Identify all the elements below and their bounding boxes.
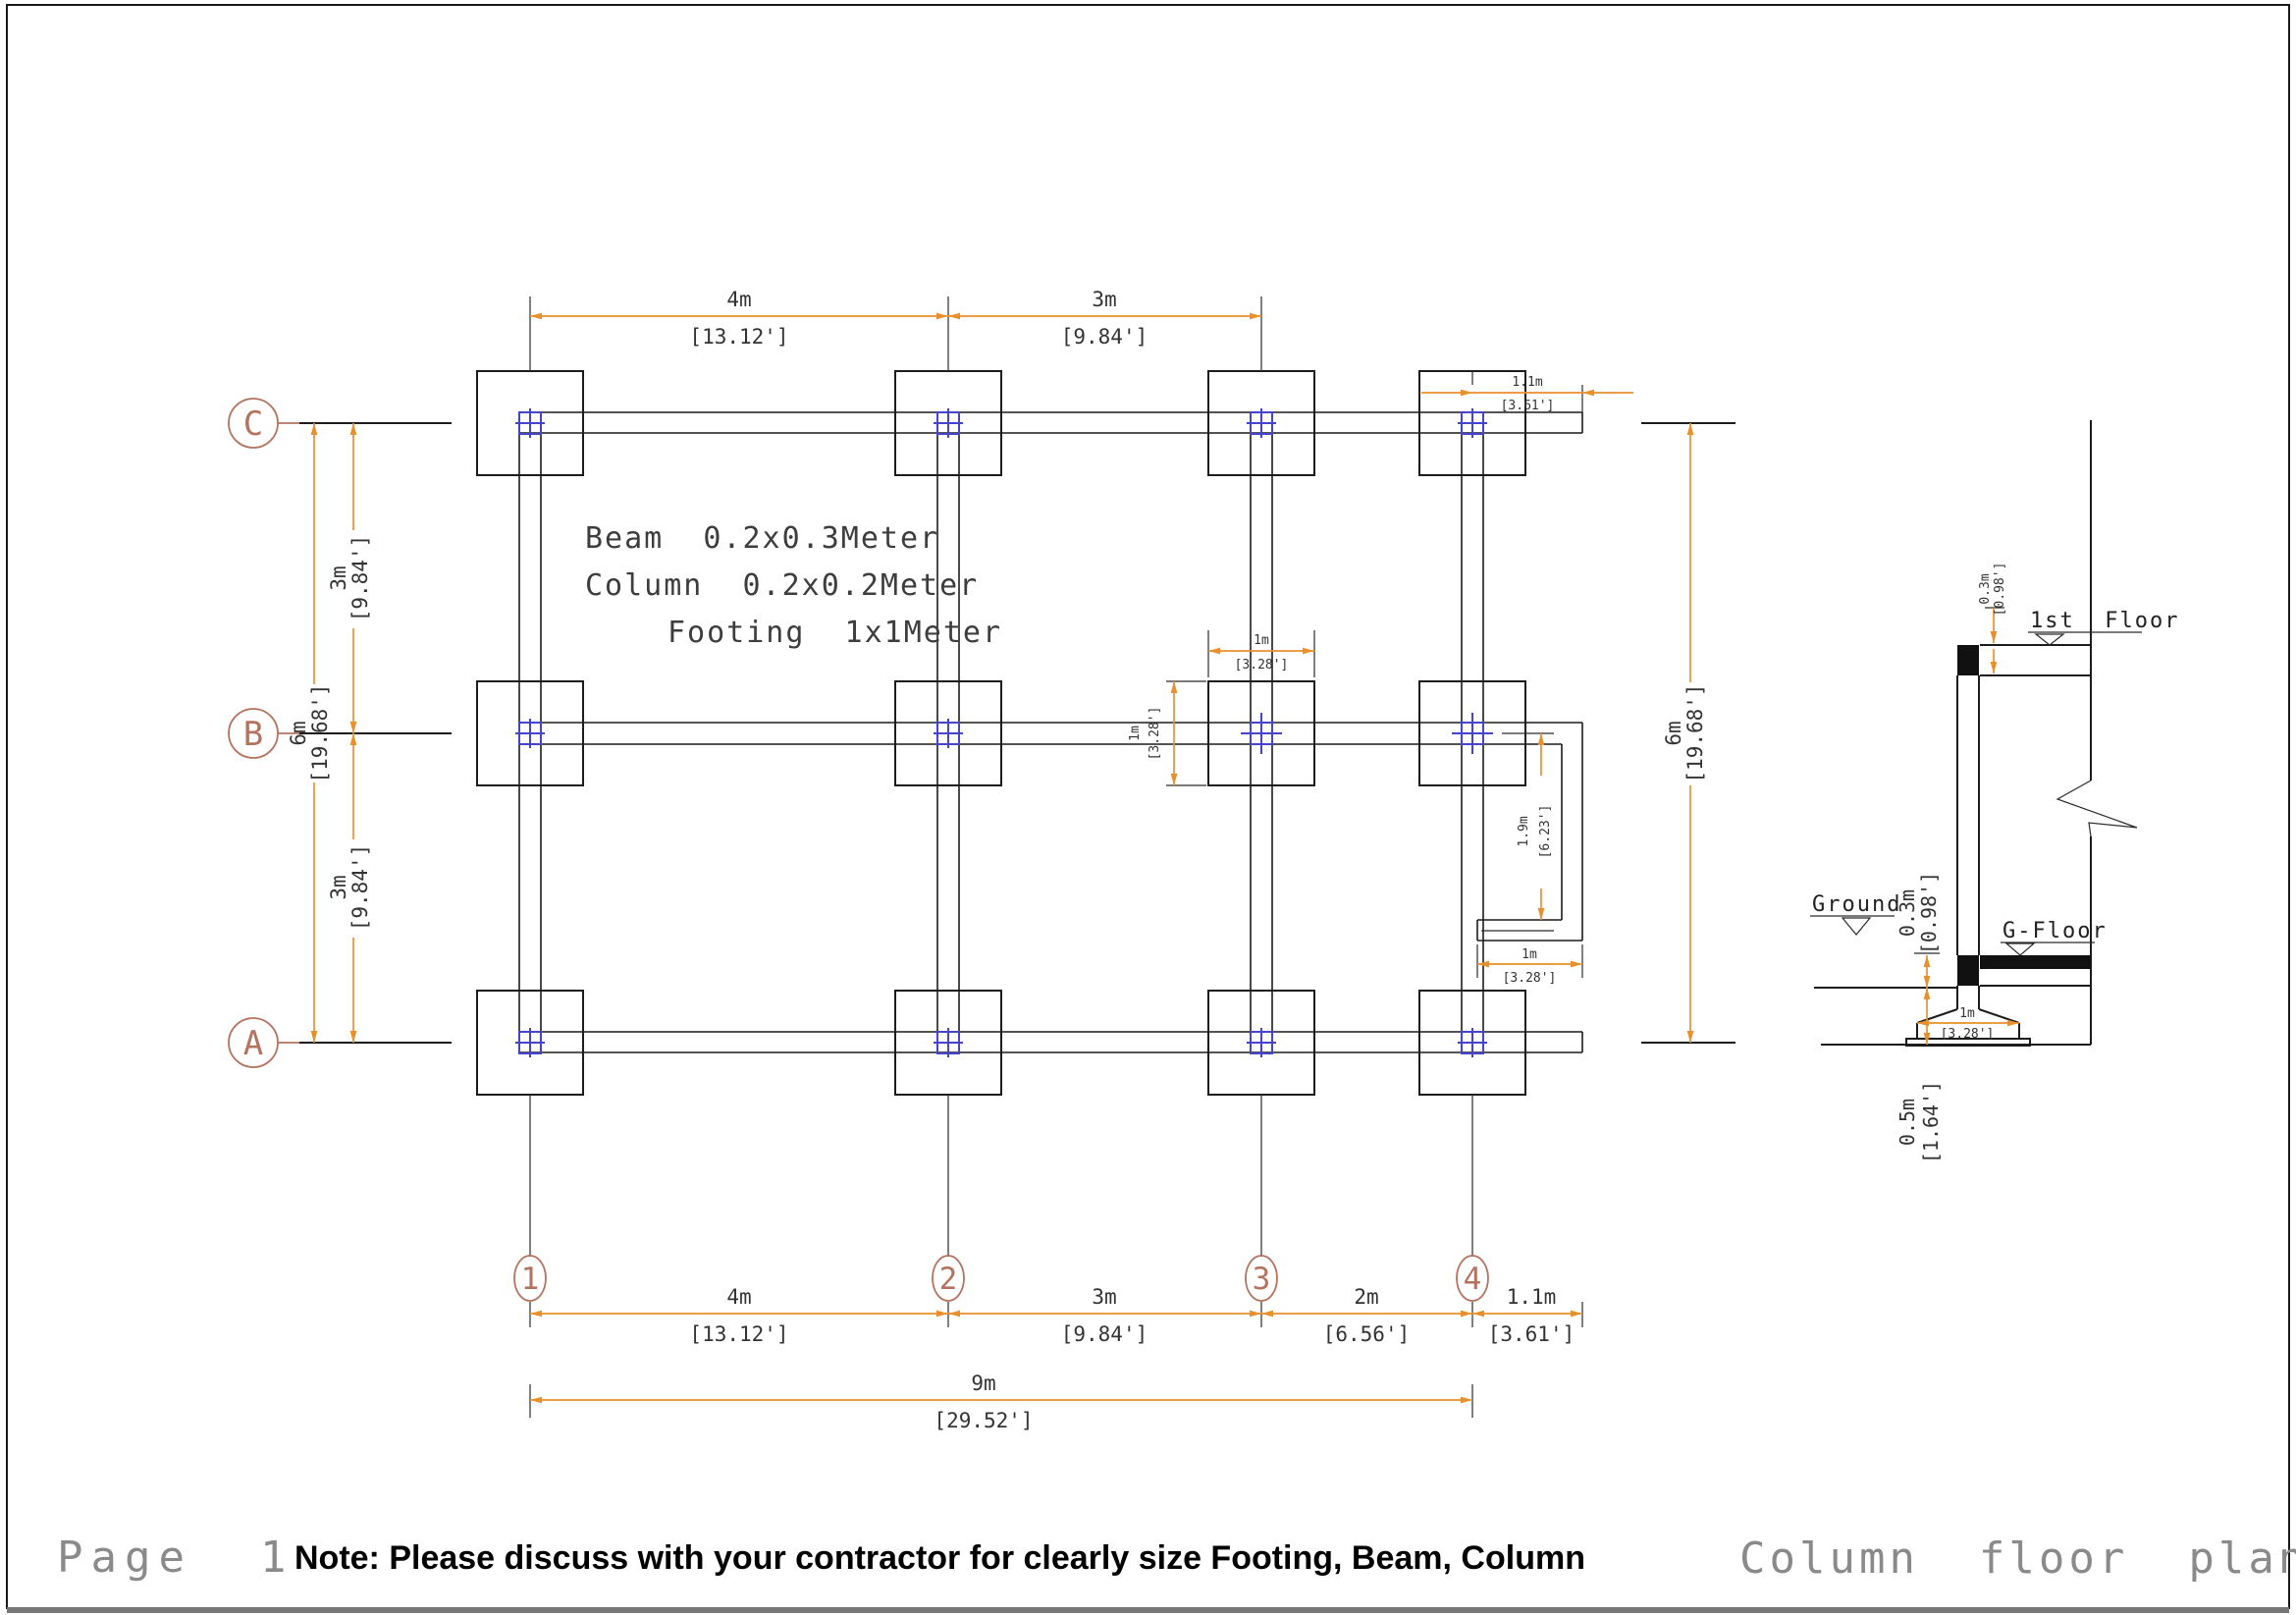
dim-right-6m-ft: [19.68'] <box>1683 683 1707 782</box>
section-detail: 1st Floor G-Floor Ground 0.3m [0.98'] 0.… <box>1810 420 2179 1163</box>
dim-left-3m-cb-m: 3m <box>327 565 350 590</box>
dim-top-4m-m: 4m <box>726 288 751 311</box>
col-label-2: 2 <box>939 1262 958 1297</box>
slab-section-gfloor <box>1980 955 2091 969</box>
column-a3 <box>1247 1028 1276 1057</box>
spec-beam: Beam 0.2x0.3Meter <box>585 521 939 556</box>
footing-outlines <box>477 371 1525 1095</box>
dimensions-bottom: 4m [13.12'] 3m [9.84'] 2m [6.56'] 1.1m [… <box>530 1285 1582 1432</box>
column-c2 <box>934 408 963 438</box>
dim-footingw-ft: [3.28'] <box>1235 658 1289 673</box>
dim-bot-3m-ft: [9.84'] <box>1061 1322 1148 1346</box>
spec-footing: Footing 1x1Meter <box>667 616 1002 650</box>
col-label-1: 1 <box>521 1262 540 1297</box>
column-c4 <box>1458 408 1487 438</box>
spec-column: Column 0.2x0.2Meter <box>585 568 979 603</box>
beam-section-1st <box>1957 645 1979 675</box>
dim-bot-3m-m: 3m <box>1092 1285 1116 1309</box>
dim-topright-m: 1.1m <box>1512 375 1542 390</box>
dim-left-6m-m: 6m <box>287 721 310 745</box>
page-border <box>7 5 2289 1608</box>
contractor-note: Note: Please discuss with your contracto… <box>294 1539 1585 1577</box>
dim-sec-depth-ft: [1.64'] <box>1919 1081 1943 1163</box>
grid-extension-lines <box>278 296 1735 1418</box>
dim-footingw-m: 1m <box>1254 633 1269 648</box>
dim-bot-2m-m: 2m <box>1354 1285 1378 1309</box>
dim-topright-ft: [3.61'] <box>1501 399 1555 413</box>
dimensions-top: 4m [13.12'] 3m [9.84'] 1.1m [3.61'] <box>530 288 1633 413</box>
dim-left-3m-ba-m: 3m <box>327 875 350 899</box>
label-ground: Ground <box>1812 892 1901 917</box>
dim-bot-11m-m: 1.1m <box>1507 1285 1557 1309</box>
dim-bot-4m-m: 4m <box>726 1285 751 1309</box>
dim-bot-9m-ft: [29.52'] <box>934 1409 1033 1432</box>
col-label-4: 4 <box>1464 1262 1482 1297</box>
dim-stairh-ft: [6.23'] <box>1538 805 1553 859</box>
dim-top-3m-ft: [9.84'] <box>1061 325 1148 349</box>
dimensions-stair: 1.9m [6.23'] 1m [3.28'] <box>1477 733 1582 986</box>
dim-footingh-m: 1m <box>1128 726 1143 741</box>
dim-left-6m-ft: [19.68'] <box>308 683 332 782</box>
column-a4 <box>1458 1028 1487 1057</box>
column-b2 <box>934 719 963 748</box>
dimensions-right: 6m [19.68'] <box>1662 423 1707 1043</box>
column-b3 <box>1241 713 1282 754</box>
drawing-page: C B A 1 2 3 4 4m [13.12'] 3m [9.84'] 1.1… <box>0 0 2296 1615</box>
dim-bot-4m-ft: [13.12'] <box>689 1322 788 1346</box>
dim-sec-footingw-m: 1m <box>1959 1006 1975 1021</box>
dim-sec-beamtop-ft: [0.98'] <box>1993 563 2007 617</box>
spec-notes: Beam 0.2x0.3Meter Column 0.2x0.2Meter Fo… <box>585 521 1002 650</box>
col-label-3: 3 <box>1253 1262 1271 1297</box>
column-c3 <box>1247 408 1276 438</box>
beam-section-gfloor <box>1957 955 1979 986</box>
dim-right-6m-m: 6m <box>1662 721 1685 745</box>
dimensions-footing-b3: 1m [3.28'] 1m [3.28'] <box>1128 633 1314 785</box>
column-b4 <box>1452 713 1493 754</box>
column-c1 <box>515 408 545 438</box>
dim-sec-footingw-ft: [3.28'] <box>1941 1027 1995 1042</box>
level-marker-ground-icon <box>1842 918 1870 935</box>
cad-canvas: C B A 1 2 3 4 4m [13.12'] 3m [9.84'] 1.1… <box>0 0 2296 1615</box>
column-a1 <box>515 1028 545 1057</box>
dim-left-3m-cb-ft: [9.84'] <box>348 535 372 622</box>
page-number: Page 1 <box>57 1533 294 1583</box>
dim-sec-beamg-m: 0.3m <box>1896 889 1919 937</box>
dim-bot-11m-ft: [3.61'] <box>1488 1322 1575 1346</box>
dim-top-4m-ft: [13.12'] <box>689 325 788 349</box>
break-line-icon <box>2057 781 2137 836</box>
row-label-c: C <box>243 404 263 444</box>
dim-bot-9m-m: 9m <box>971 1372 995 1395</box>
column-b1 <box>515 719 545 748</box>
level-marker-1st-icon <box>2036 634 2063 645</box>
label-1st-floor: 1st Floor <box>2030 609 2179 633</box>
dim-stairh-m: 1.9m <box>1517 816 1531 846</box>
drawing-title: Column floor plan <box>1739 1534 2296 1584</box>
dim-left-3m-ba-ft: [9.84'] <box>348 844 372 932</box>
row-label-b: B <box>243 715 263 754</box>
page-border-bottom <box>7 1607 2289 1613</box>
dim-bot-2m-ft: [6.56'] <box>1323 1322 1411 1346</box>
dim-stairw-m: 1m <box>1522 947 1537 962</box>
dim-sec-beamg-ft: [0.98'] <box>1917 872 1941 954</box>
dim-stairw-ft: [3.28'] <box>1503 971 1557 986</box>
dim-sec-beamtop-m: 0.3m <box>1978 573 1993 604</box>
column-markers <box>515 408 1493 1057</box>
level-marker-gfloor-icon <box>2006 943 2034 955</box>
column-a2 <box>934 1028 963 1057</box>
dim-sec-depth-m: 0.5m <box>1896 1099 1919 1146</box>
beam-lines <box>519 412 1582 1052</box>
dim-footingh-ft: [3.28'] <box>1148 707 1162 761</box>
row-label-a: A <box>243 1024 263 1063</box>
label-g-floor: G-Floor <box>2002 919 2108 943</box>
footer: Page 1 Note: Please discuss with your co… <box>57 1533 2296 1584</box>
dim-top-3m-m: 3m <box>1092 288 1116 311</box>
